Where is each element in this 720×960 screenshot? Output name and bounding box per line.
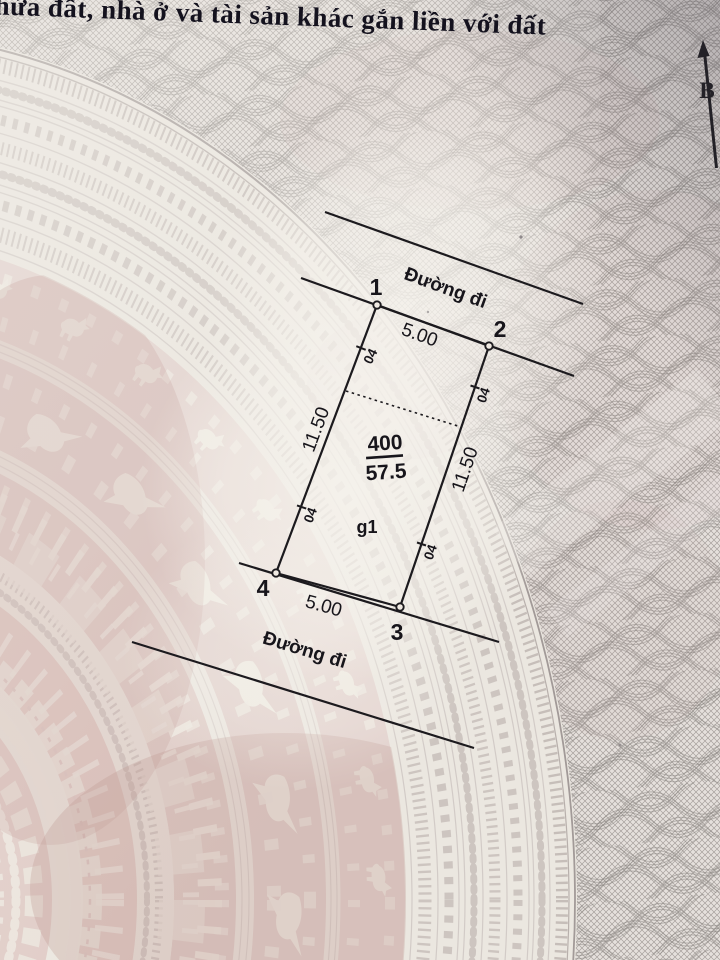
svg-text:B: B [699, 78, 714, 103]
svg-text:g1: g1 [356, 517, 377, 537]
svg-text:1: 1 [370, 274, 383, 300]
svg-text:2: 2 [494, 316, 507, 342]
svg-text:57.5: 57.5 [365, 460, 408, 486]
svg-text:400: 400 [367, 431, 404, 456]
svg-text:4: 4 [257, 575, 270, 601]
svg-text:3: 3 [391, 619, 404, 645]
